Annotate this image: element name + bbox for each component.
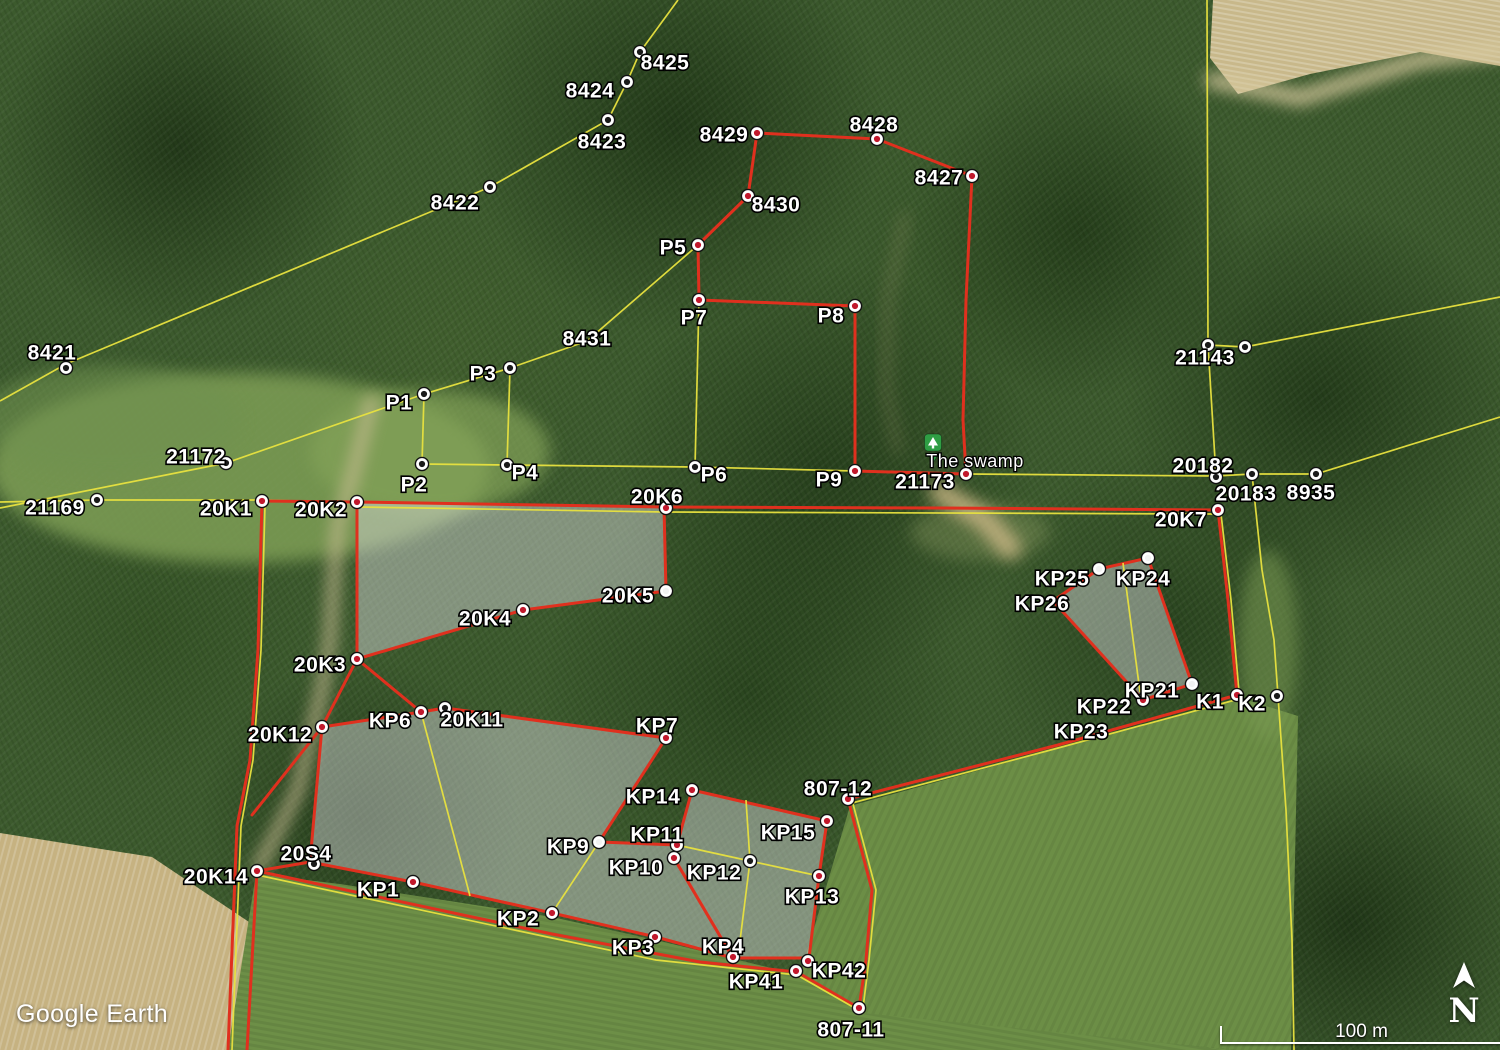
label-P6: P6 <box>701 464 728 487</box>
label-20K14: 20K14 <box>184 866 248 889</box>
marker-8935[interactable] <box>1309 467 1322 480</box>
label-20K2: 20K2 <box>295 499 347 522</box>
label-P4: P4 <box>512 462 539 485</box>
label-20K12: 20K12 <box>248 724 312 747</box>
marker-8422[interactable] <box>483 180 496 193</box>
label-20K3: 20K3 <box>294 654 346 677</box>
marker-8427[interactable] <box>965 169 978 182</box>
r-K1-20K7 <box>1218 510 1237 695</box>
marker-807-11[interactable] <box>852 1001 865 1014</box>
label-20182: 20182 <box>1173 455 1234 478</box>
label-8423: 8423 <box>578 131 627 154</box>
label-P5: P5 <box>660 237 687 260</box>
map-overlay: 842184228423842484258429842884278430P5P7… <box>0 0 1500 1050</box>
marker-20K4[interactable] <box>516 603 529 616</box>
north-letter: N <box>1442 996 1486 1027</box>
label-KP12: KP12 <box>687 862 742 885</box>
label-21172: 21172 <box>166 446 226 469</box>
marker-20K12[interactable] <box>315 720 328 733</box>
marker-8424[interactable] <box>620 75 633 88</box>
marker-KP1[interactable] <box>406 875 419 888</box>
label-K2: K2 <box>1238 693 1266 716</box>
label-KP22: KP22 <box>1077 696 1132 719</box>
label-KP24: KP24 <box>1116 568 1171 591</box>
north-indicator: N <box>1442 962 1486 1027</box>
marker-P7[interactable] <box>692 293 705 306</box>
marker-KP14[interactable] <box>685 783 698 796</box>
r-20K3-KP6 <box>357 659 421 712</box>
y-21143-branch <box>1208 297 1500 347</box>
label-P8: P8 <box>818 305 845 328</box>
google-earth-logo: Google Earth <box>16 1000 168 1029</box>
marker-20K3[interactable] <box>350 652 363 665</box>
marker-KP24[interactable] <box>1141 551 1154 564</box>
marker-KP9[interactable] <box>592 835 605 848</box>
label-8428: 8428 <box>850 114 899 137</box>
marker-KP13[interactable] <box>812 869 825 882</box>
marker-20K14[interactable] <box>250 864 263 877</box>
label-KP4: KP4 <box>702 936 744 959</box>
label-KP23: KP23 <box>1054 721 1109 744</box>
marker-20183[interactable] <box>1245 467 1258 480</box>
north-arrow-icon <box>1452 962 1476 989</box>
label-P3: P3 <box>470 363 497 386</box>
label-20K5: 20K5 <box>602 585 654 608</box>
marker-P3[interactable] <box>503 361 516 374</box>
label-21143: 21143 <box>1175 347 1235 370</box>
label-KP25: KP25 <box>1035 568 1090 591</box>
parcel-20K <box>357 502 666 659</box>
label-KP26: KP26 <box>1015 593 1070 616</box>
label-20S4: 20S4 <box>280 843 331 866</box>
marker-20K2[interactable] <box>350 495 363 508</box>
marker-KP2[interactable] <box>545 906 558 919</box>
label-8422: 8422 <box>431 192 480 215</box>
label-P1: P1 <box>386 392 413 415</box>
label-8421: 8421 <box>28 342 77 365</box>
label-8425: 8425 <box>641 52 690 75</box>
label-KP11: KP11 <box>630 824 683 847</box>
label-P7: P7 <box>681 307 708 330</box>
label-20K6: 20K6 <box>631 486 683 509</box>
label-KP1: KP1 <box>357 879 399 902</box>
label-8424: 8424 <box>566 80 615 103</box>
label-KP9: KP9 <box>547 836 589 859</box>
marker-P6[interactable] <box>688 460 701 473</box>
label-20K7: 20K7 <box>1155 509 1207 532</box>
label-KP15: KP15 <box>761 822 816 845</box>
marker-KP10[interactable] <box>667 851 680 864</box>
label-KP41: KP41 <box>729 971 784 994</box>
marker-21169[interactable] <box>90 493 103 506</box>
marker-P1[interactable] <box>417 387 430 400</box>
y-north-vert <box>1207 0 1216 476</box>
label-807-12: 807-12 <box>804 778 872 801</box>
label-8429: 8429 <box>700 124 749 147</box>
label-20183: 20183 <box>1216 483 1277 506</box>
marker-20K1[interactable] <box>255 494 268 507</box>
label-8935: 8935 <box>1287 482 1336 505</box>
label-the-swamp: The swamp <box>926 451 1024 471</box>
label-20K4: 20K4 <box>459 608 511 631</box>
label-KP21: KP21 <box>1125 680 1180 703</box>
marker-KP25[interactable] <box>1092 562 1105 575</box>
marker-P8[interactable] <box>848 299 861 312</box>
marker-KP15[interactable] <box>820 814 833 827</box>
marker-divider-east[interactable] <box>743 854 756 867</box>
marker-KP6[interactable] <box>414 705 427 718</box>
marker-8423[interactable] <box>601 113 614 126</box>
label-KP2: KP2 <box>497 908 539 931</box>
trail-center <box>886 215 905 452</box>
label-K1: K1 <box>1196 691 1224 714</box>
label-KP42: KP42 <box>812 960 867 983</box>
label-KP10: KP10 <box>609 857 664 880</box>
label-8430: 8430 <box>752 194 801 217</box>
label-KP6: KP6 <box>369 710 411 733</box>
label-KP14: KP14 <box>626 786 681 809</box>
marker-KP21[interactable] <box>1185 677 1198 690</box>
label-P9: P9 <box>816 469 843 492</box>
label-8431: 8431 <box>563 328 612 351</box>
marker-KP41[interactable] <box>789 964 802 977</box>
marker-8429[interactable] <box>750 126 763 139</box>
label-21169: 21169 <box>25 497 85 520</box>
label-20K1: 20K1 <box>200 498 252 521</box>
google-earth-map[interactable]: 842184228423842484258429842884278430P5P7… <box>0 0 1500 1050</box>
label-KP7: KP7 <box>636 715 678 738</box>
marker-P9[interactable] <box>848 464 861 477</box>
label-P2: P2 <box>401 474 428 497</box>
marker-P2[interactable] <box>415 457 428 470</box>
label-KP3: KP3 <box>612 937 654 960</box>
label-21173: 21173 <box>895 471 955 494</box>
label-KP13: KP13 <box>785 886 840 909</box>
label-8427: 8427 <box>915 167 964 190</box>
label-20K11: 20K11 <box>440 709 503 732</box>
marker-P5[interactable] <box>691 238 704 251</box>
label-807-11: 807-11 <box>817 1019 884 1042</box>
marker-21143-b[interactable] <box>1238 340 1251 353</box>
marker-20K5[interactable] <box>659 584 672 597</box>
y-k1-hug <box>1221 514 1239 692</box>
marker-K2[interactable] <box>1270 689 1283 702</box>
